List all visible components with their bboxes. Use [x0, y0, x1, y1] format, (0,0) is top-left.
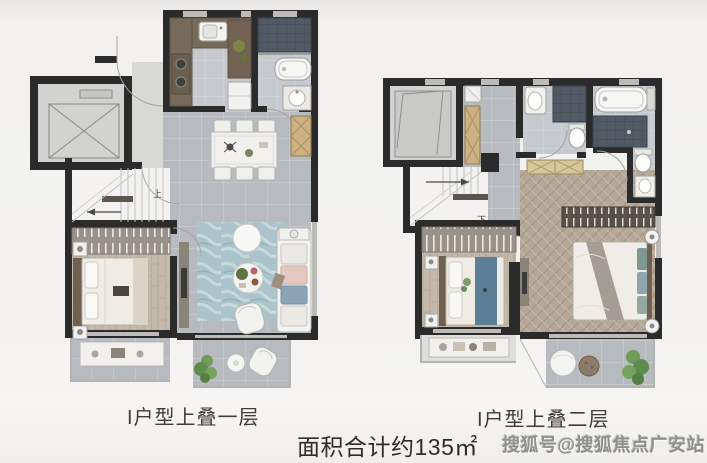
- elevator-shaft: [30, 76, 132, 170]
- wardrobe: [422, 227, 516, 252]
- serving-tray: [233, 263, 263, 293]
- shower: [258, 18, 311, 52]
- coffee-table: [233, 224, 261, 252]
- pouf-chair: [550, 350, 576, 376]
- floorplan-level2: 下: [383, 78, 662, 388]
- stairs-up-label: 上: [153, 189, 162, 199]
- floorplan-level1: 上: [30, 10, 318, 388]
- shower: [553, 86, 586, 122]
- toilet: [635, 154, 651, 172]
- toilet: [569, 128, 585, 148]
- pouf: [579, 356, 599, 376]
- floorplan-page: 上: [0, 0, 707, 463]
- hall-cabinets: [465, 86, 481, 164]
- entry-hall-floor: [132, 62, 163, 168]
- plan2-caption: I户型上叠二层: [477, 403, 610, 432]
- watermark-text: 搜狐号@搜狐焦点广安站: [502, 431, 705, 457]
- sofa: [271, 228, 311, 332]
- shower: [593, 116, 647, 147]
- dining-set: [211, 120, 277, 180]
- elevator-shaft: [395, 91, 451, 157]
- walkin-wardrobe: [562, 207, 655, 227]
- hall-cabinet: [291, 116, 311, 156]
- plan1-caption: I户型上叠一层: [127, 401, 260, 430]
- floorplans-drawing: 上: [0, 0, 707, 463]
- total-area-text: 面积合计约135㎡: [297, 428, 478, 462]
- dining-table: [211, 132, 277, 168]
- stairs-down-label: 下: [477, 215, 486, 225]
